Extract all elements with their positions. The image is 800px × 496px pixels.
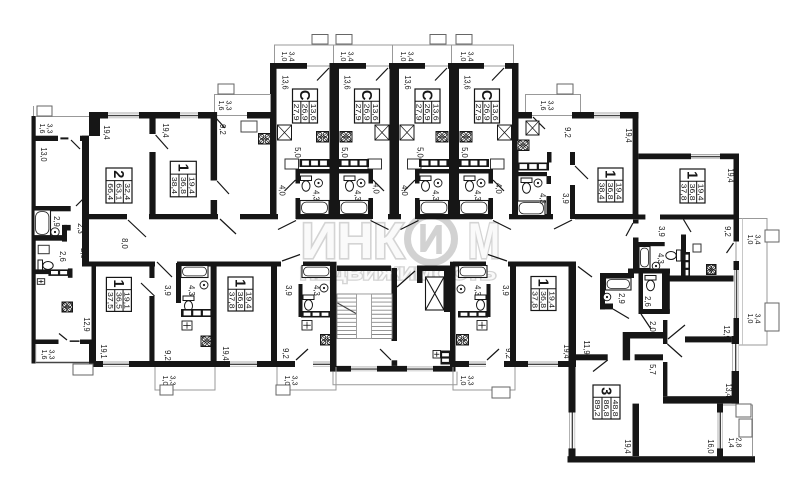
svg-text:4,0: 4,0 xyxy=(372,183,381,194)
svg-text:3,9: 3,9 xyxy=(284,285,293,296)
svg-text:63,1: 63,1 xyxy=(115,183,124,200)
svg-text:36,5: 36,5 xyxy=(114,292,123,309)
svg-text:37,8: 37,8 xyxy=(228,292,237,309)
svg-text:37,8: 37,8 xyxy=(680,184,689,201)
svg-text:16,0: 16,0 xyxy=(706,439,715,454)
svg-text:4,3: 4,3 xyxy=(187,285,196,296)
svg-text:5,0: 5,0 xyxy=(293,147,302,158)
svg-text:2,3: 2,3 xyxy=(76,223,85,234)
svg-text:5,0: 5,0 xyxy=(340,147,349,158)
svg-text:3,9: 3,9 xyxy=(501,285,510,296)
svg-text:С: С xyxy=(296,90,312,101)
svg-text:3,4: 3,4 xyxy=(754,235,763,245)
svg-text:36,8: 36,8 xyxy=(179,177,188,194)
svg-text:37,8: 37,8 xyxy=(531,291,540,308)
svg-text:2,0: 2,0 xyxy=(648,321,657,332)
svg-text:27,9: 27,9 xyxy=(354,104,363,121)
svg-text:3,9: 3,9 xyxy=(561,193,570,204)
svg-text:С: С xyxy=(478,90,494,101)
svg-text:2,8: 2,8 xyxy=(735,438,744,448)
svg-text:11,9: 11,9 xyxy=(582,340,591,355)
svg-text:5,0: 5,0 xyxy=(416,147,425,158)
svg-text:9,2: 9,2 xyxy=(218,124,227,135)
svg-text:66,4: 66,4 xyxy=(106,183,115,200)
svg-text:1: 1 xyxy=(535,279,551,287)
svg-text:36,8: 36,8 xyxy=(688,184,697,201)
svg-text:12,9: 12,9 xyxy=(82,317,91,332)
svg-text:5,0: 5,0 xyxy=(460,147,469,158)
svg-text:2,9: 2,9 xyxy=(52,216,61,227)
svg-text:19,4: 19,4 xyxy=(614,183,623,200)
svg-text:19,4: 19,4 xyxy=(726,168,735,183)
svg-text:5,7: 5,7 xyxy=(648,364,657,375)
svg-text:2,0: 2,0 xyxy=(79,248,88,259)
svg-text:19,4: 19,4 xyxy=(696,184,705,201)
svg-text:9,2: 9,2 xyxy=(163,350,172,361)
svg-text:48,8: 48,8 xyxy=(611,400,620,417)
svg-text:3,4: 3,4 xyxy=(288,52,297,62)
svg-text:4,3: 4,3 xyxy=(656,253,665,264)
svg-text:13,6: 13,6 xyxy=(281,75,290,90)
svg-text:3,9: 3,9 xyxy=(657,226,666,237)
svg-text:86,8: 86,8 xyxy=(602,400,611,417)
svg-text:38,4: 38,4 xyxy=(598,183,607,200)
svg-text:27,9: 27,9 xyxy=(292,104,301,121)
svg-text:ИНК: ИНК xyxy=(301,213,404,269)
svg-text:19,1: 19,1 xyxy=(99,344,108,359)
svg-text:13,6: 13,6 xyxy=(309,104,318,121)
svg-text:3,9: 3,9 xyxy=(163,285,172,296)
svg-text:26,9: 26,9 xyxy=(423,104,432,121)
svg-text:4,3: 4,3 xyxy=(312,190,321,201)
svg-text:3,4: 3,4 xyxy=(407,52,416,62)
svg-text:32,4: 32,4 xyxy=(123,183,132,200)
svg-text:36,8: 36,8 xyxy=(539,291,548,308)
svg-text:19,1: 19,1 xyxy=(123,292,132,309)
svg-text:4,3: 4,3 xyxy=(473,190,482,201)
svg-text:8,0: 8,0 xyxy=(120,238,129,249)
svg-text:3,3: 3,3 xyxy=(291,376,300,386)
svg-text:С: С xyxy=(358,90,374,101)
svg-text:1: 1 xyxy=(232,279,248,287)
svg-text:3,4: 3,4 xyxy=(467,52,476,62)
svg-text:19,4: 19,4 xyxy=(547,291,556,308)
svg-text:1: 1 xyxy=(174,164,190,172)
svg-text:26,9: 26,9 xyxy=(301,104,310,121)
svg-text:38,4: 38,4 xyxy=(170,177,179,194)
svg-text:9,2: 9,2 xyxy=(281,348,290,359)
svg-text:13,6: 13,6 xyxy=(403,75,412,90)
svg-text:13,6: 13,6 xyxy=(343,75,352,90)
svg-text:1: 1 xyxy=(684,171,700,179)
svg-text:13,6: 13,6 xyxy=(371,104,380,121)
svg-text:3,3: 3,3 xyxy=(547,101,556,111)
svg-text:4,3: 4,3 xyxy=(538,193,547,204)
svg-text:89,2: 89,2 xyxy=(593,400,602,417)
svg-text:12,9: 12,9 xyxy=(722,325,731,340)
svg-text:3,3: 3,3 xyxy=(169,376,178,386)
svg-text:2,6: 2,6 xyxy=(643,296,652,307)
svg-text:27,9: 27,9 xyxy=(415,104,424,121)
svg-text:13,6: 13,6 xyxy=(431,104,440,121)
svg-text:19,4: 19,4 xyxy=(187,177,196,194)
svg-text:3,4: 3,4 xyxy=(754,314,763,324)
svg-text:13,6: 13,6 xyxy=(463,75,472,90)
svg-text:37,5: 37,5 xyxy=(106,292,115,309)
svg-text:2,9: 2,9 xyxy=(617,293,626,304)
svg-text:13,0: 13,0 xyxy=(39,147,48,162)
svg-text:3,3: 3,3 xyxy=(225,101,234,111)
svg-text:3,3: 3,3 xyxy=(46,124,55,134)
svg-text:19,4: 19,4 xyxy=(221,346,230,361)
svg-text:19,4: 19,4 xyxy=(244,292,253,309)
svg-text:19,4: 19,4 xyxy=(623,439,632,454)
svg-text:19,4: 19,4 xyxy=(102,125,111,140)
svg-text:26,9: 26,9 xyxy=(363,104,372,121)
svg-text:1: 1 xyxy=(110,279,126,287)
svg-text:4,3: 4,3 xyxy=(353,190,362,201)
svg-text:9,2: 9,2 xyxy=(563,127,572,138)
svg-text:3,3: 3,3 xyxy=(48,350,57,360)
svg-text:9,2: 9,2 xyxy=(723,226,732,237)
svg-text:2: 2 xyxy=(110,170,126,178)
svg-text:36,8: 36,8 xyxy=(236,292,245,309)
svg-text:3,4: 3,4 xyxy=(347,52,356,62)
svg-text:4,3: 4,3 xyxy=(431,190,440,201)
svg-text:19,4: 19,4 xyxy=(161,123,170,138)
svg-text:3,3: 3,3 xyxy=(467,376,476,386)
svg-text:27,9: 27,9 xyxy=(474,104,483,121)
svg-text:2,6: 2,6 xyxy=(58,251,67,262)
svg-text:36,8: 36,8 xyxy=(606,183,615,200)
svg-text:1: 1 xyxy=(602,170,618,178)
svg-text:19,4: 19,4 xyxy=(624,128,633,143)
svg-text:С: С xyxy=(419,90,435,101)
svg-text:13,6: 13,6 xyxy=(491,104,500,121)
svg-text:26,9: 26,9 xyxy=(483,104,492,121)
svg-text:3: 3 xyxy=(598,387,614,395)
